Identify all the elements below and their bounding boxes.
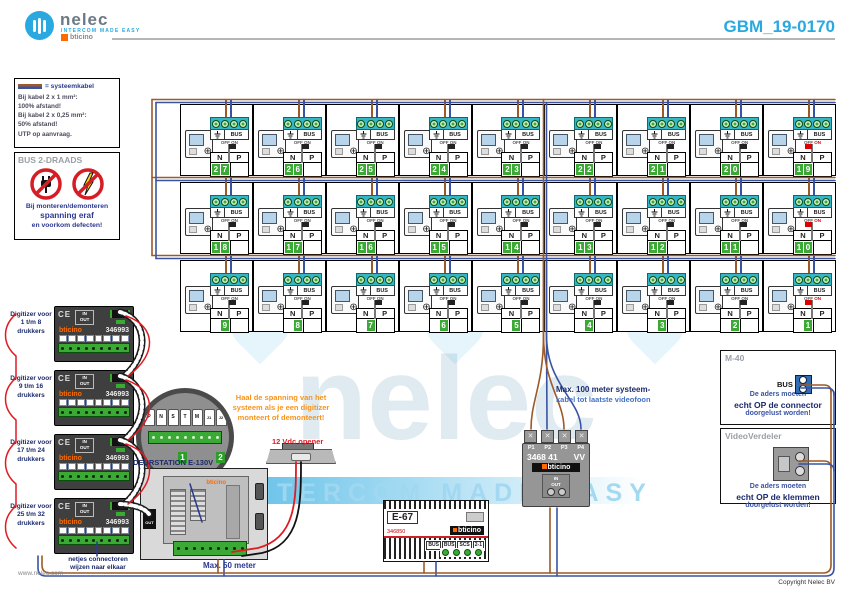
- primair-terminal-P: P: [144, 409, 155, 426]
- videophone-icon: ⊕: [185, 130, 213, 158]
- ground-icon: [721, 130, 735, 139]
- model-number: 346993: [106, 327, 129, 334]
- bus-wire-blue: [522, 178, 524, 195]
- terminal-number-strip: [55, 334, 133, 343]
- videophone-icon: ⊕: [477, 130, 505, 158]
- intercom-unit-20: ⊕BUSOFF ONNP20: [690, 104, 763, 176]
- intercom-unit-17: ⊕BUSOFF ONNP17: [253, 182, 326, 254]
- intercom-unit-5: ⊕BUSOFF ONNP5: [472, 260, 545, 332]
- ground-icon: [575, 286, 589, 295]
- bus-terminal: [501, 273, 540, 286]
- intercom-unit-19: ⊕BUSOFF ONNP19: [763, 104, 836, 176]
- terminator-switch: OFF ON: [356, 218, 395, 229]
- unit-number: 24: [430, 163, 450, 176]
- bus-wire-blue: [303, 100, 305, 117]
- bus-terminal: [283, 117, 322, 130]
- doorstation-panel: INOUT bticino: [140, 468, 268, 560]
- videophone-icon: ⊕: [404, 208, 432, 236]
- videophone-icon: ⊕: [695, 130, 723, 158]
- bus-wire-blue: [230, 256, 232, 273]
- bus-label: BUS: [589, 288, 612, 294]
- digitizer-label: Digitizer voor 25 t/m 32 drukkers: [10, 503, 52, 528]
- bus-wire-blue: [376, 256, 378, 273]
- ribbon-socket: [110, 502, 130, 510]
- videophone-icon: ⊕: [331, 130, 359, 158]
- terminal-number-strip: [55, 462, 133, 471]
- screw-terminal: ✕: [575, 430, 588, 443]
- terminator-switch: OFF ON: [210, 140, 249, 151]
- intercom-unit-21: ⊕BUSOFF ONNP21: [617, 104, 690, 176]
- bus-terminal: [501, 117, 540, 130]
- terminal-strip: [58, 535, 130, 545]
- partner-brand: bticino: [61, 34, 93, 41]
- opener-plate: [266, 449, 336, 464]
- bus-wire-brown: [371, 256, 373, 273]
- bus-wire-blue: [740, 100, 742, 117]
- ground-icon: [794, 130, 808, 139]
- bus-wire-blue: [230, 178, 232, 195]
- bus-wire-blue: [594, 100, 596, 117]
- bus-wire-blue: [303, 256, 305, 273]
- terminator-switch: OFF ON: [793, 140, 832, 151]
- ground-icon: [794, 286, 808, 295]
- bus-wire-blue: [449, 178, 451, 195]
- bticino-icon: [61, 34, 68, 41]
- bus-terminal: [283, 273, 322, 286]
- ground-icon: [721, 286, 735, 295]
- unit-row: ⊕BUSOFF ONNP27⊕BUSOFF ONNP26⊕BUSOFF ONNP…: [180, 104, 836, 176]
- videophone-icon: ⊕: [404, 286, 432, 314]
- intercom-unit-11: ⊕BUSOFF ONNP11: [690, 182, 763, 254]
- bus-wire-blue: [740, 256, 742, 273]
- bus-terminal: [210, 273, 249, 286]
- m40-note: De aders moetenecht OP de connectordoorg…: [721, 391, 835, 421]
- bus-terminal: [647, 117, 686, 130]
- terminator-switch: OFF ON: [429, 140, 468, 151]
- ce-mark: CE: [58, 502, 71, 511]
- inout-diagram: INOUT: [75, 438, 94, 453]
- videophone-icon: ⊕: [695, 286, 723, 314]
- terminator-switch: OFF ON: [793, 296, 832, 307]
- bus-wire-brown: [444, 178, 446, 195]
- digitizer-module-3: Digitizer voor 17 t/m 24 drukkersCEINOUT…: [10, 434, 136, 490]
- primair-terminal-N: N: [156, 409, 167, 426]
- bus-label: BUS: [371, 288, 394, 294]
- bus-terminal: [720, 195, 759, 208]
- terminator-switch: OFF ON: [647, 140, 686, 151]
- no-plug-icon: [29, 167, 63, 201]
- max-cable-note: Max. 100 meter systeem- kabel tot laatst…: [556, 385, 736, 405]
- bus-terminal: [283, 195, 322, 208]
- unit-row: ⊕BUSOFF ONNP9⊕BUSOFF ONNP8⊕BUSOFF ONNP7⊕…: [180, 260, 836, 332]
- bus-terminal: [793, 117, 832, 130]
- intercom-unit-18: ⊕BUSOFF ONNP18: [180, 182, 253, 254]
- bus-wire-brown: [517, 100, 519, 117]
- intercom-unit-14: ⊕BUSOFF ONNP14: [472, 182, 545, 254]
- aux-socket: [116, 320, 125, 324]
- psu-switch: [466, 512, 484, 522]
- m40-info-box: M-40 BUS De aders moetenecht OP de conne…: [720, 350, 836, 425]
- bus-wire-blue: [376, 100, 378, 117]
- bus-warning-box: BUS 2-DRAADS Bij monteren/demonteren spa…: [14, 152, 120, 240]
- doorstation-label: DEURSTATION E-130V: [133, 458, 213, 467]
- model-number: 346993: [106, 519, 129, 526]
- terminator-switch: OFF ON: [429, 296, 468, 307]
- bus-terminal: [429, 195, 468, 208]
- bus-terminal: [356, 117, 395, 130]
- doorstation-terminals: [173, 541, 247, 556]
- bus-label: BUS: [371, 210, 394, 216]
- bus-wire-blue: [303, 178, 305, 195]
- intercom-unit-8: ⊕BUSOFF ONNP8: [253, 260, 326, 332]
- unit-number: 13: [575, 241, 595, 254]
- m40-title: M-40: [721, 351, 835, 363]
- ground-icon: [575, 208, 589, 217]
- terminator-switch: OFF ON: [720, 296, 759, 307]
- videophone-icon: ⊕: [404, 130, 432, 158]
- videophone-icon: ⊕: [185, 208, 213, 236]
- ground-icon: [430, 208, 444, 217]
- terminator-switch: OFF ON: [501, 296, 540, 307]
- bus-wire-blue: [449, 256, 451, 273]
- terminator-switch: OFF ON: [720, 218, 759, 229]
- ground-icon: [357, 208, 371, 217]
- videophone-icon: ⊕: [695, 208, 723, 236]
- bus-wire-brown: [662, 178, 664, 195]
- bus-wire-brown: [225, 100, 227, 117]
- inout-diagram: INOUT: [75, 310, 94, 325]
- bus-terminal: [793, 195, 832, 208]
- intercom-unit-10: ⊕BUSOFF ONNP10: [763, 182, 836, 254]
- bus-wire-blue: [740, 178, 742, 195]
- intercom-unit-12: ⊕BUSOFF ONNP12: [617, 182, 690, 254]
- terminator-switch: OFF ON: [356, 296, 395, 307]
- bus-terminal: [429, 273, 468, 286]
- videophone-icon: ⊕: [477, 286, 505, 314]
- legend-line: UTP op aanvraag.: [18, 130, 116, 139]
- bus-wire-brown: [298, 256, 300, 273]
- bus-label: BUS: [662, 210, 685, 216]
- ground-icon: [502, 286, 516, 295]
- distributor-model: 3468 41: [527, 452, 558, 462]
- ground-icon: [357, 286, 371, 295]
- bus-label: BUS: [589, 210, 612, 216]
- ground-icon: [284, 286, 298, 295]
- unit-number: 10: [794, 241, 814, 254]
- terminator-switch: OFF ON: [210, 296, 249, 307]
- ground-icon: [575, 130, 589, 139]
- bus-terminal: [647, 273, 686, 286]
- ground-icon: [721, 208, 735, 217]
- psu-terminal-label: BUS: [426, 541, 441, 550]
- videophone-icon: ⊕: [549, 208, 577, 236]
- ground-icon: [430, 130, 444, 139]
- terminator-switch: OFF ON: [647, 296, 686, 307]
- copyright: Copyright Nelec BV: [778, 579, 835, 586]
- bticino-logo: bticino: [59, 519, 82, 526]
- inout-diagram: INOUT: [75, 502, 94, 517]
- ce-mark: CE: [58, 310, 71, 319]
- bus-wire-blue: [594, 256, 596, 273]
- bus-wire-brown: [662, 256, 664, 273]
- terminator-switch: OFF ON: [501, 218, 540, 229]
- videophone-icon: ⊕: [258, 130, 286, 158]
- bus-label: BUS: [444, 132, 467, 138]
- digitizer-label: Digitizer voor 1 t/m 8 drukkers: [10, 311, 52, 336]
- ribbon-socket: [110, 310, 130, 318]
- aux-socket: [116, 384, 125, 388]
- videophone-icon: ⊕: [622, 286, 650, 314]
- unit-number: 1: [794, 319, 814, 332]
- ground-icon: [430, 286, 444, 295]
- bus-wire-brown: [225, 256, 227, 273]
- bus-wire-blue: [667, 256, 669, 273]
- bus-terminal: [356, 273, 395, 286]
- bus-wire-brown: [662, 100, 664, 117]
- terminator-switch: OFF ON: [574, 218, 613, 229]
- ce-mark: CE: [58, 374, 71, 383]
- videophone-icon: ⊕: [768, 130, 796, 158]
- bus-label: BUS: [225, 210, 248, 216]
- bus-terminal: [210, 195, 249, 208]
- terminal-strip: [58, 471, 130, 481]
- inout-diagram: INOUT: [75, 374, 94, 389]
- model-number: 346993: [106, 391, 129, 398]
- videophone-icon: ⊕: [331, 208, 359, 236]
- ground-icon: [357, 130, 371, 139]
- bus-wire-brown: [517, 256, 519, 273]
- terminator-switch: OFF ON: [356, 140, 395, 151]
- bus-wire-blue: [813, 100, 815, 117]
- doorstation-module: bticino: [163, 476, 249, 544]
- unit-number: 6: [430, 319, 450, 332]
- unit-number: 17: [284, 241, 304, 254]
- videophone-icon: ⊕: [549, 286, 577, 314]
- terminal-strip: [58, 343, 130, 353]
- bus-terminal: [429, 117, 468, 130]
- terminal-number-strip: [55, 398, 133, 407]
- terminal-tag: 2: [216, 452, 225, 463]
- unit-number: 3: [648, 319, 668, 332]
- unit-number: 9: [211, 319, 231, 332]
- videophone-icon: ⊕: [331, 286, 359, 314]
- unit-number: 2: [721, 319, 741, 332]
- bus-label: BUS: [735, 132, 758, 138]
- schematic-page: nelec INTERCOM MADE EASY nelec INTERCOM …: [0, 0, 841, 595]
- ce-mark: CE: [58, 438, 71, 447]
- model-number: 346993: [106, 455, 129, 462]
- intercom-unit-6: ⊕BUSOFF ONNP6: [399, 260, 472, 332]
- unit-number: 14: [502, 241, 522, 254]
- primair-terminal-S: S: [168, 409, 179, 426]
- videophone-icon: ⊕: [185, 286, 213, 314]
- intercom-unit-24: ⊕BUSOFF ONNP24: [399, 104, 472, 176]
- videoverdeler-note: De aders moetenecht OP de klemmendoorgel…: [721, 483, 835, 513]
- intercom-unit-27: ⊕BUSOFF ONNP27: [180, 104, 253, 176]
- intercom-unit-15: ⊕BUSOFF ONNP15: [399, 182, 472, 254]
- ribbon-connector: INOUT: [143, 509, 156, 529]
- bus-wire-blue: [813, 178, 815, 195]
- terminal-label-P3: P3: [561, 445, 568, 451]
- connector-note: netjes connectorenwijzen naar elkaar: [56, 556, 140, 573]
- psu-terminals: [440, 548, 484, 557]
- bus-terminal: [574, 195, 613, 208]
- digitizer-device: CEINOUTbticino346993: [54, 498, 134, 554]
- intercom-unit-22: ⊕BUSOFF ONNP22: [544, 104, 617, 176]
- bticino-logo: bticino: [59, 391, 82, 398]
- bus-label: BUS: [808, 132, 831, 138]
- primair-terminal-M: M: [192, 409, 203, 426]
- unit-number: 19: [794, 163, 814, 176]
- ground-icon: [648, 208, 662, 217]
- bus-label: BUS: [808, 210, 831, 216]
- terminator-switch: OFF ON: [574, 296, 613, 307]
- bus-wire-blue: [522, 100, 524, 117]
- unit-number: 22: [575, 163, 595, 176]
- bus-label: BUS: [735, 288, 758, 294]
- bus-wire-brown: [371, 100, 373, 117]
- terminator-switch: OFF ON: [720, 140, 759, 151]
- bus-label: BUS: [735, 210, 758, 216]
- cable-legend-box: = systeemkabel Bij kabel 2 x 1 mm²: 100%…: [14, 78, 120, 148]
- ground-icon: [502, 208, 516, 217]
- bus-label: BUS: [225, 288, 248, 294]
- digitizer-module-4: Digitizer voor 25 t/m 32 drukkersCEINOUT…: [10, 498, 136, 554]
- videoverdeler-title: VideoVerdeler: [721, 429, 835, 441]
- bus-wire-brown: [589, 256, 591, 273]
- unit-number: 12: [648, 241, 668, 254]
- bus-wire-blue: [813, 256, 815, 273]
- digitizer-module-1: Digitizer voor 1 t/m 8 drukkersCEINOUTbt…: [10, 306, 136, 362]
- intercom-unit-26: ⊕BUSOFF ONNP26: [253, 104, 326, 176]
- bus-wire-brown: [517, 178, 519, 195]
- intercom-unit-3: ⊕BUSOFF ONNP3: [617, 260, 690, 332]
- bus-terminal: [501, 195, 540, 208]
- videophone-icon: ⊕: [768, 286, 796, 314]
- warning-title: BUS 2-DRAADS: [15, 153, 119, 165]
- bus-terminal: [574, 273, 613, 286]
- ground-icon: [648, 130, 662, 139]
- nelec-logo-icon: [25, 11, 54, 40]
- distributor-terminal-labels: P1P2P3P4: [523, 444, 589, 451]
- bus-terminal: [574, 117, 613, 130]
- legend-line: Bij kabel 2 x 0,25 mm²:: [18, 111, 116, 120]
- videophone-icon: ⊕: [622, 130, 650, 158]
- ribbon-socket: [110, 374, 130, 382]
- bus-terminal: [720, 117, 759, 130]
- bus-label: BUS: [589, 132, 612, 138]
- bus-wire-blue: [376, 178, 378, 195]
- intercom-unit-1: ⊕BUSOFF ONNP1: [763, 260, 836, 332]
- intercom-unit-25: ⊕BUSOFF ONNP25: [326, 104, 399, 176]
- bus-label: BUS: [298, 210, 321, 216]
- bus-label: BUS: [516, 210, 539, 216]
- ground-icon: [284, 208, 298, 217]
- unit-number: 8: [284, 319, 304, 332]
- bus-wire-brown: [225, 178, 227, 195]
- video-distributor-3468: ✕✕✕✕ P1P2P3P4 3468 41VV bticino INOUT: [522, 430, 590, 508]
- terminator-switch: OFF ON: [501, 140, 540, 151]
- bus-wire-brown: [808, 100, 810, 117]
- bus-wire-brown: [735, 100, 737, 117]
- digitizer-label: Digitizer voor 9 t/m 16 drukkers: [10, 375, 52, 400]
- unit-row: ⊕BUSOFF ONNP18⊕BUSOFF ONNP17⊕BUSOFF ONNP…: [180, 182, 836, 254]
- videophone-icon: ⊕: [622, 208, 650, 236]
- unit-number: 21: [648, 163, 668, 176]
- ground-icon: [284, 130, 298, 139]
- psu-model: E-67: [387, 511, 418, 524]
- bticino-logo: bticino: [59, 327, 82, 334]
- screw-terminal: ✕: [541, 430, 554, 443]
- bus-label: BUS: [298, 288, 321, 294]
- terminal-strip: [58, 407, 130, 417]
- unit-number: 23: [502, 163, 522, 176]
- intercom-unit-2: ⊕BUSOFF ONNP2: [690, 260, 763, 332]
- bus-wire-blue: [230, 100, 232, 117]
- psu-code: 346850: [387, 529, 405, 535]
- ground-icon: [502, 130, 516, 139]
- intercom-unit-9: ⊕BUSOFF ONNP9: [180, 260, 253, 332]
- legend-line: 50% afstand!: [18, 120, 116, 129]
- distributor-inout: INOUT: [542, 474, 570, 498]
- videophone-icon: ⊕: [549, 130, 577, 158]
- bus-label: BUS: [662, 132, 685, 138]
- power-off-note: Haal de spanning van hetsysteem als je e…: [212, 393, 350, 422]
- videophone-icon: ⊕: [477, 208, 505, 236]
- unit-number: 5: [502, 319, 522, 332]
- max50-label: Max. 50 meter: [203, 561, 256, 570]
- terminator-switch: OFF ON: [429, 218, 468, 229]
- digitizer-module-2: Digitizer voor 9 t/m 16 drukkersCEINOUTb…: [10, 370, 136, 426]
- warning-text: Bij monteren/demonteren spanning eraf en…: [15, 203, 119, 230]
- bus-terminal: [720, 273, 759, 286]
- systemcable-label: = systeemkabel: [45, 82, 94, 92]
- bus-label: BUS: [298, 132, 321, 138]
- systemcable-swatch: [18, 84, 42, 89]
- terminator-switch: OFF ON: [283, 218, 322, 229]
- aux-socket: [116, 448, 125, 452]
- terminal-label-P1: P1: [528, 445, 535, 451]
- ground-icon: [211, 130, 225, 139]
- digitizer-label: Digitizer voor 17 t/m 24 drukkers: [10, 439, 52, 464]
- bus-label: BUS: [371, 132, 394, 138]
- digitizer-device: CEINOUTbticino346993: [54, 306, 134, 362]
- videoverdeler-device: [773, 447, 809, 481]
- unit-number: 4: [575, 319, 595, 332]
- terminal-label-P4: P4: [577, 445, 584, 451]
- bus-label: BUS: [444, 210, 467, 216]
- terminator-switch: OFF ON: [210, 218, 249, 229]
- bus-terminal: [356, 195, 395, 208]
- intercom-unit-23: ⊕BUSOFF ONNP23: [472, 104, 545, 176]
- bus-wire-brown: [589, 100, 591, 117]
- bus-wire-brown: [808, 178, 810, 195]
- doorstation-button: [255, 513, 264, 530]
- distributor-screw-terminals: ✕✕✕✕: [522, 430, 590, 443]
- bus-label: BUS: [516, 288, 539, 294]
- terminator-switch: OFF ON: [283, 296, 322, 307]
- unit-number: 27: [211, 163, 231, 176]
- intercom-unit-7: ⊕BUSOFF ONNP7: [326, 260, 399, 332]
- doorstation-button: [255, 483, 264, 500]
- no-voltage-icon: [71, 167, 105, 201]
- terminator-switch: OFF ON: [793, 218, 832, 229]
- terminator-switch: OFF ON: [647, 218, 686, 229]
- ribbon-socket: [110, 438, 130, 446]
- bus-wire-blue: [667, 100, 669, 117]
- terminator-switch: OFF ON: [574, 140, 613, 151]
- bus-label: BUS: [662, 288, 685, 294]
